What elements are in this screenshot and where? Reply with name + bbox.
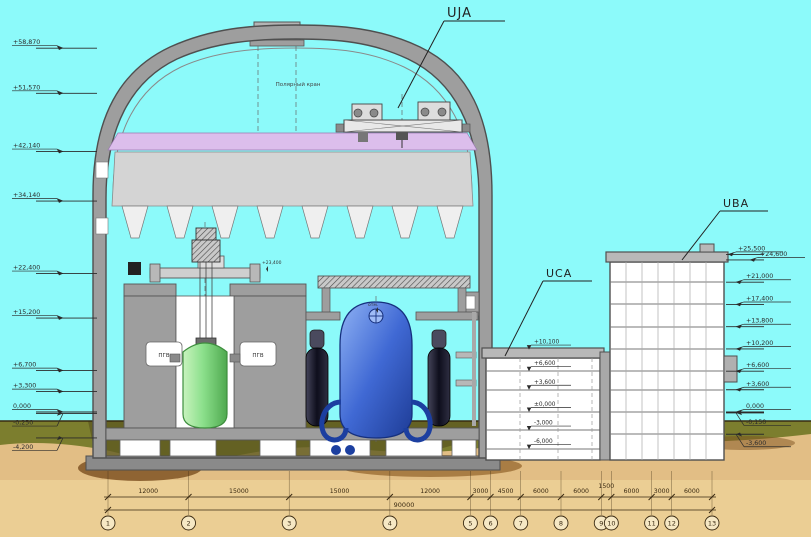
axis-bubble: 5	[463, 516, 477, 530]
section-drawing: Полярный кран ПГВ ПГВ +23,400 отм.	[0, 0, 811, 537]
dimension-label: 6000	[684, 488, 700, 495]
pgv-label: ПГВ	[158, 353, 169, 359]
crane-wheel	[354, 109, 362, 117]
axis-number: 2	[186, 520, 190, 528]
uba-building	[606, 244, 737, 460]
dimension-label: 6000	[624, 488, 640, 495]
floor-elevation-label: -6,000	[534, 439, 553, 445]
elevation-label: +6,600	[746, 362, 769, 369]
dimension-label: 12000	[420, 488, 440, 495]
elevation-label: +51,570	[13, 84, 40, 91]
axis-bubble: 12	[665, 516, 679, 530]
operating-deck	[124, 284, 176, 296]
pump-motor	[432, 330, 446, 348]
elevation-label: -3,600	[746, 440, 766, 447]
axis-bubble: 7	[514, 516, 528, 530]
stair-tower	[600, 352, 610, 460]
platform-column	[322, 288, 330, 314]
elevation-label: +15,200	[13, 309, 40, 316]
reactor-vessel	[183, 343, 227, 428]
drawing-canvas: Полярный кран ПГВ ПГВ +23,400 отм.	[0, 0, 811, 537]
axis-number: 9	[599, 520, 603, 528]
pipe-section	[331, 445, 341, 455]
platform-column	[458, 288, 466, 314]
dimension-label: 3000	[654, 488, 670, 495]
dimension-label: 6000	[533, 488, 549, 495]
axis-bubble: 6	[484, 516, 498, 530]
axis-bubble: 2	[182, 516, 196, 530]
otm-note: отм.	[368, 303, 378, 308]
axis-number: 10	[607, 520, 615, 528]
uba-roof-slab	[606, 252, 728, 262]
vessel-support	[230, 354, 240, 362]
axis-number: 1	[106, 520, 110, 528]
hall-floor	[416, 312, 478, 320]
crane-wheel	[438, 108, 446, 116]
axis-number: 7	[519, 520, 523, 528]
axis-number: 8	[559, 520, 563, 528]
crane-rail-bracket	[336, 124, 344, 132]
elevation-label: +10,200	[746, 340, 773, 347]
axis-bubble: 11	[645, 516, 659, 530]
uba-label: UBA	[723, 197, 749, 210]
elevation-label: +3,600	[746, 381, 769, 388]
axis-number: 12	[668, 520, 676, 528]
uba-roof-hatch	[700, 244, 714, 252]
uba-side-box	[724, 356, 737, 382]
crane-wheel	[370, 109, 378, 117]
side-ladder	[472, 312, 476, 426]
basement-room	[170, 440, 216, 456]
floor-elevation-label: +10,100	[534, 340, 559, 346]
ring-zone	[112, 152, 473, 206]
axis-number: 13	[708, 520, 716, 528]
axis-number: 11	[647, 520, 655, 528]
dimension-label: 15000	[330, 488, 350, 495]
axis-number: 5	[468, 520, 472, 528]
dimension-label: 15000	[229, 488, 249, 495]
elevation-label: -0,150	[746, 419, 766, 426]
crane-wheel	[421, 108, 429, 116]
floor-elevation-label: +3,600	[534, 380, 556, 386]
wall-niche	[96, 218, 108, 234]
elevation-label: -4,200	[13, 444, 33, 451]
uja-label: UJA	[447, 6, 472, 21]
main-coolant-pump	[428, 348, 450, 426]
bridge-end	[250, 264, 260, 282]
elevation-label: +6,700	[13, 362, 36, 369]
elevation-label: +42,140	[13, 143, 40, 150]
uca-roof-slab	[482, 348, 604, 358]
total-dimension-label: 90000	[394, 501, 415, 509]
dimension-label: 1500	[598, 483, 614, 490]
elevation-label: +21,000	[746, 273, 773, 280]
elevation-label: +3,300	[13, 383, 36, 390]
crane-girder-band	[108, 133, 477, 150]
pump-motor	[310, 330, 324, 348]
axis-number: 3	[287, 520, 291, 528]
basement-room	[120, 440, 160, 456]
interior-level-note: +23,400	[262, 260, 282, 266]
uca-label: UCA	[546, 267, 572, 280]
floor-elevation-label: +6,600	[534, 361, 556, 367]
vessel-support	[170, 354, 180, 362]
dimension-label: 6000	[573, 488, 589, 495]
axis-bubble: 8	[554, 516, 568, 530]
pipe-section	[345, 445, 355, 455]
wall-niche	[465, 296, 475, 309]
elevation-label: +13,800	[746, 318, 773, 325]
floor-elevation-label: ±0,000	[534, 402, 556, 408]
axis-bubble: 1	[101, 516, 115, 530]
elevation-label: +24,600	[760, 251, 787, 258]
crd-tower	[192, 240, 220, 262]
crd-block	[196, 228, 216, 240]
elevation-label: 0,000	[746, 403, 764, 410]
bridge-end	[150, 264, 160, 282]
crane-rail-bracket	[462, 124, 470, 132]
basement-room	[452, 440, 476, 456]
hall-floor	[306, 312, 340, 320]
elevation-label: 0,000	[13, 403, 31, 410]
elevation-label: -0,250	[13, 420, 33, 427]
crane-hook-block	[396, 132, 408, 140]
elevation-label: +34,140	[13, 192, 40, 199]
axis-bubble: 13	[705, 516, 719, 530]
hatched-platform	[318, 276, 470, 288]
axis-bubble: 4	[383, 516, 397, 530]
axis-bubble: 10	[604, 516, 618, 530]
axis-number: 6	[488, 520, 492, 528]
elevation-label: +58,870	[13, 39, 40, 46]
rail-end-block	[128, 262, 141, 275]
elevation-label: +22,400	[13, 265, 40, 272]
operating-deck	[230, 284, 306, 296]
refuelling-bridge	[150, 268, 260, 278]
elevation-label: +17,400	[746, 295, 773, 302]
uba-body	[610, 262, 724, 460]
axis-bubble: 3	[282, 516, 296, 530]
dimension-label: 3000	[473, 488, 489, 495]
pgv-label: ПГВ	[252, 353, 263, 359]
axis-number: 4	[388, 520, 392, 528]
dimension-label: 4500	[498, 488, 514, 495]
wall-niche	[96, 162, 108, 178]
crane-hoist	[358, 132, 368, 142]
basement-room	[260, 440, 296, 456]
floor-elevation-label: -3,000	[534, 421, 553, 427]
basement-room	[386, 440, 442, 456]
hall-text: Полярный кран	[276, 81, 321, 88]
dimension-label: 12000	[138, 488, 158, 495]
